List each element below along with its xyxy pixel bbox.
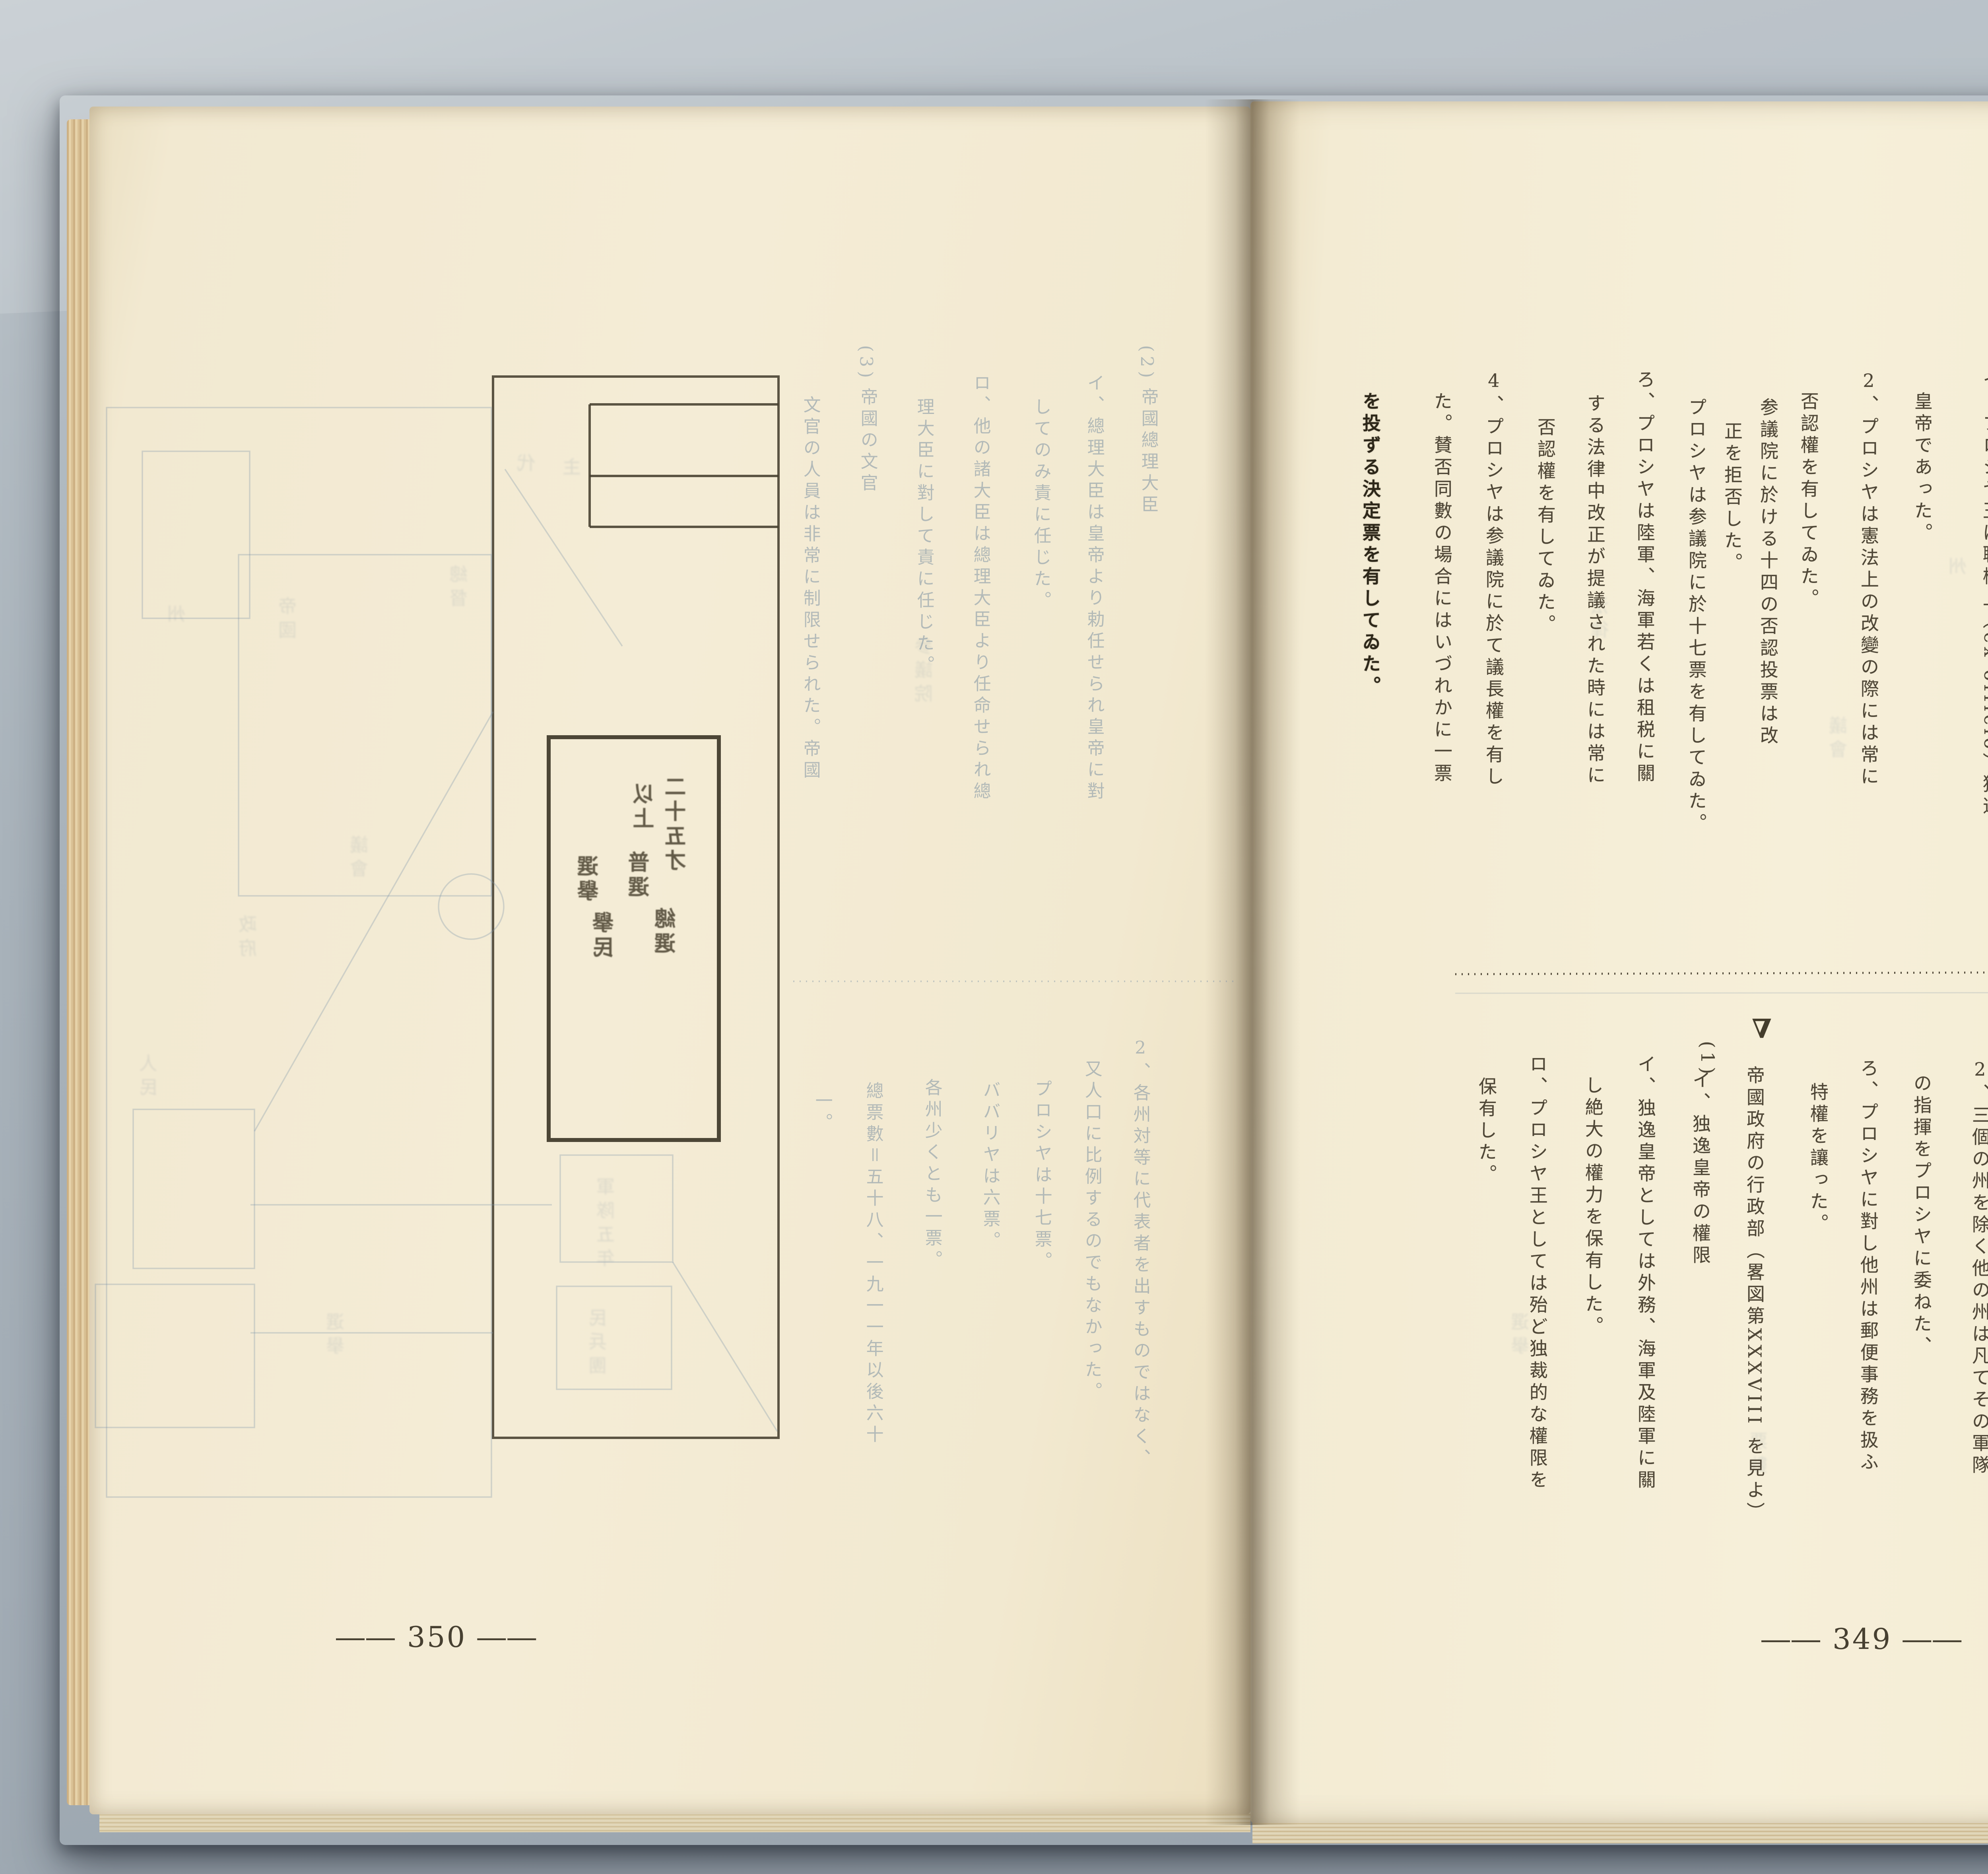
page-number-right: ―― 349 ―― (1761, 1622, 1963, 1656)
text-column: 保有した。 (1476, 1077, 1497, 1186)
text-column: 帝國政府の行政部（畧図第XXXVIII を見よ） (1744, 1066, 1765, 1524)
text-column: イ、独逸皇帝としては外務、海軍及陸軍に關 (1635, 1054, 1656, 1492)
text-column: ろ、プロシヤに對し他州は郵便事務を扱ふ (1858, 1058, 1879, 1474)
text-column: ロ、プロシヤ王としては殆ど独裁的な權限を (1527, 1054, 1548, 1492)
photo-canvas: 主代總督帝國州議會政府軍隊五年民兵團選擧人民參議院帝國政府州議會法律選擧人口票數… (0, 0, 1988, 1874)
text-column: 特權を讓った。 (1807, 1082, 1829, 1235)
text-column: イ、独逸皇帝の權限 (1690, 1070, 1711, 1267)
page-number-left: ―― 350 ―― (336, 1620, 538, 1654)
section-marker: ∇ (1746, 1013, 1776, 1048)
text-column: 2、三個の州を除く他の州は凡てその軍隊 (1969, 1058, 1988, 1477)
text-column: の指揮をプロシヤに委ねた、 (1911, 1074, 1932, 1358)
right-lower-columns: 5、プロシヤは、参議院に於て存立する凡ての委員會の委員長を指名した。(4)慣習並… (0, 0, 1988, 1874)
text-column: し絶大の權力を保有した。 (1582, 1076, 1604, 1338)
